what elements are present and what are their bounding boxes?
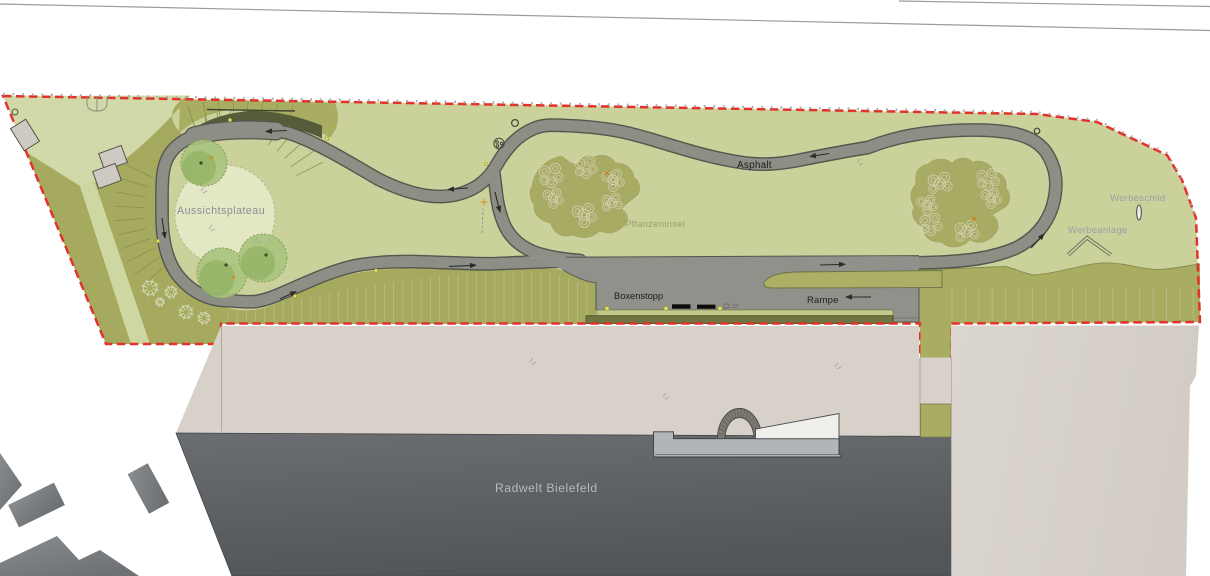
- svg-text:Aussichtsplateau: Aussichtsplateau: [177, 205, 265, 217]
- svg-text:Radwelt Bielefeld: Radwelt Bielefeld: [495, 481, 598, 495]
- svg-text:Rampe: Rampe: [807, 295, 839, 306]
- svg-text:Boxenstopp: Boxenstopp: [614, 291, 663, 301]
- svg-text:Werbeschild: Werbeschild: [1110, 193, 1165, 204]
- svg-text:Asphalt: Asphalt: [737, 160, 772, 171]
- svg-text:Pflanzeninsel: Pflanzeninsel: [625, 219, 685, 230]
- svg-text:Werbeanlage: Werbeanlage: [1068, 225, 1128, 236]
